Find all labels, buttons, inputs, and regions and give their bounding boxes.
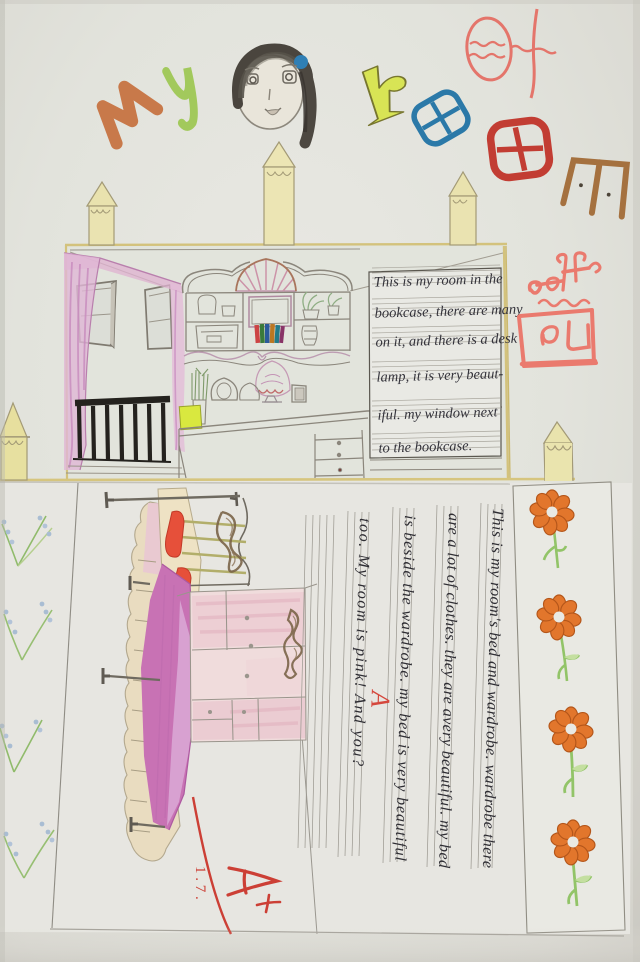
- svg-text:A: A: [365, 688, 396, 708]
- svg-text:iful. my window next: iful. my window next: [377, 404, 498, 423]
- svg-text:to the bookcase.: to the bookcase.: [378, 438, 472, 457]
- svg-text:1 . 7 .: 1 . 7 .: [192, 866, 208, 900]
